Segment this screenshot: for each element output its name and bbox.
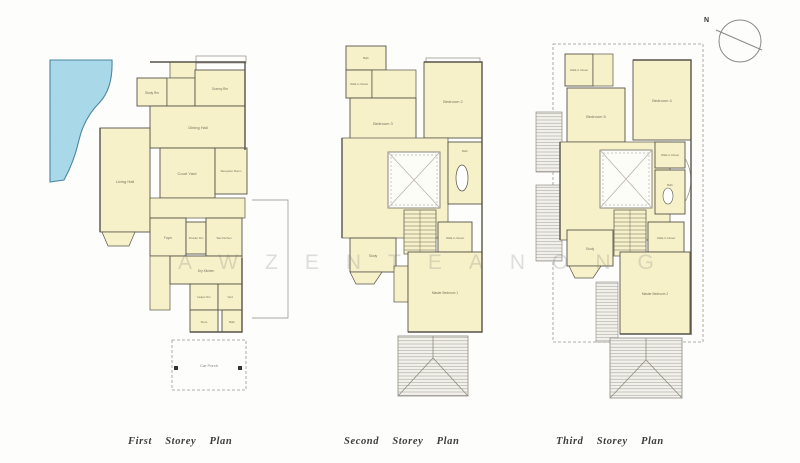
title-second-storey: Second Storey Plan [344,436,459,447]
room-label-dining: Dining Hall [188,125,207,130]
room-label-car-porch: Car Porch [200,363,218,368]
room-label-yard: Yard [227,295,233,299]
room-label-granny: Granny Rm [212,87,229,91]
bathtub [456,165,468,191]
roof-hatch-bottom-left-3 [596,282,618,342]
floorplan-sheet: Study Rm Granny Rm Dining Hall Living Ha… [0,0,800,463]
watermark: AWZENTEANONG [178,251,681,275]
room-label-living: Living Hall [116,179,135,184]
room-label-study: Study Rm [145,91,159,95]
porch-roof-2 [398,336,468,396]
north-compass: N [704,17,762,62]
room-wc-top [167,78,195,106]
first-storey-plan: Study Rm Granny Rm Dining Hall Living Ha… [50,56,288,390]
room-label-foyer: Foyer [164,236,173,240]
room-label-helper: Helper Rm [197,295,211,299]
third-storey-plan: Walk-in Closet Bedroom 5 Bedroom 4 Walk-… [536,44,703,398]
room-label-bath-top-2: Bath [363,56,369,60]
compass-circle [719,20,761,62]
room-label-bedroom3: Bedroom 3 [373,121,393,126]
room-label-courtyard: Court Yard [178,171,197,176]
entry-porch [170,62,196,78]
porch-roof-3 [610,338,682,398]
room-label-store: Store [201,320,208,324]
room-label-walkin-mid-2: Walk-in Closet [446,236,464,240]
room-label-reception: Reception Room [221,169,243,173]
title-third-storey: Third Storey Plan [556,436,664,447]
porch-post-left [174,366,178,370]
room-label-walkin-top-2: Walk-in Closet [350,82,368,86]
room-label-bedroom5: Bedroom 5 [586,114,606,119]
bathtub-3 [663,188,673,204]
walkway [150,256,170,310]
room-label-walkin-top-3: Walk-in Closet [570,68,588,72]
hall-top-2 [372,70,416,98]
hall-top-3 [593,54,613,86]
room-label-bedroom2: Bedroom 2 [443,99,463,104]
room-label-bath-mid-2: Bath [462,149,468,153]
roof-hatch-left-upper [536,112,562,172]
room-label-bath-3: Bath [667,183,673,187]
title-first-storey: First Storey Plan [128,436,232,447]
room-label-wet-kitchen: Wet Kitchen [216,236,231,240]
north-label: N [704,17,709,24]
room-label-master1: Master Bedroom 1 [432,291,458,295]
room-label-bath1: Bath [229,320,235,324]
room-label-walkin-mid-3: Walk-in Closet [661,153,679,157]
porch-post-right [238,366,242,370]
room-label-bedroom4: Bedroom 4 [652,98,672,103]
bay-bump-right-3 [685,158,691,202]
second-storey-plan: Bath Walk-in Closet Bedroom 3 Bedroom 2 … [342,46,482,396]
bay-window-living [102,232,135,246]
floorplan-drawing: Study Rm Granny Rm Dining Hall Living Ha… [0,0,800,463]
corridor [150,198,245,218]
room-label-master2: Master Bedroom 2 [642,292,668,296]
compass-needle [716,30,762,50]
room-label-powder: Powder Rm [189,236,204,240]
room-label-walkin-low-3: Walk-in Closet [657,236,675,240]
roof-hatch-left-lower [536,185,562,261]
